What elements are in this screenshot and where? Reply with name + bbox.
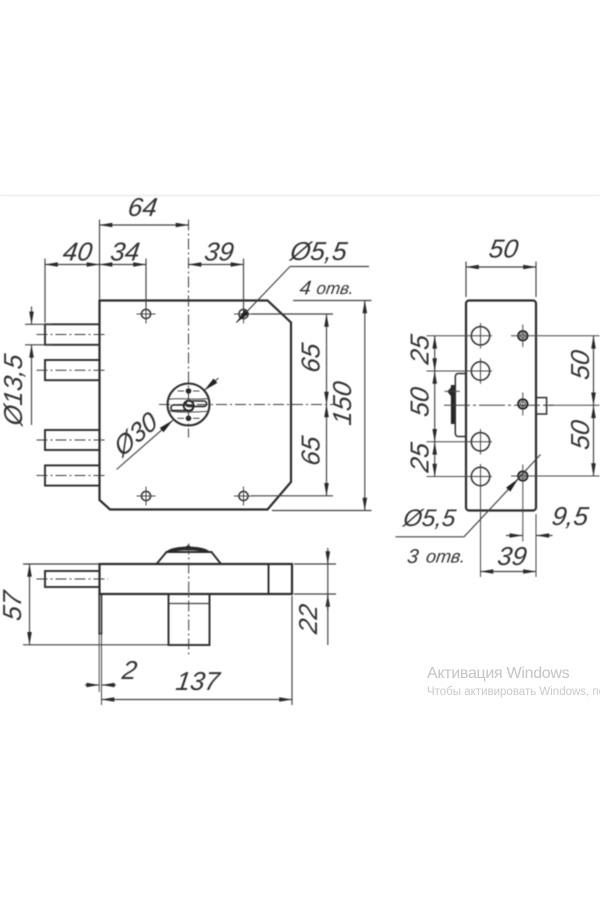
svg-text:3: 3	[406, 546, 420, 568]
svg-text:22: 22	[293, 602, 323, 637]
svg-text:50: 50	[565, 418, 595, 452]
svg-text:25: 25	[405, 332, 435, 367]
svg-text:57: 57	[0, 588, 27, 623]
svg-text:65: 65	[296, 434, 326, 468]
svg-text:9,5: 9,5	[550, 501, 591, 531]
svg-text:2: 2	[119, 655, 139, 685]
svg-text:Ø13,5: Ø13,5	[0, 352, 28, 428]
svg-text:39: 39	[203, 237, 236, 267]
svg-text:65: 65	[296, 341, 326, 375]
svg-text:39: 39	[496, 541, 529, 571]
svg-text:137: 137	[174, 666, 223, 696]
svg-text:40: 40	[61, 237, 95, 267]
svg-text:отв.: отв.	[425, 547, 467, 567]
svg-text:64: 64	[126, 192, 159, 222]
svg-text:50: 50	[405, 385, 435, 419]
svg-text:25: 25	[405, 440, 435, 475]
svg-text:50: 50	[565, 348, 595, 382]
svg-text:отв.: отв.	[315, 279, 355, 298]
svg-text:50: 50	[487, 234, 521, 264]
svg-text:Ø5,5: Ø5,5	[401, 505, 458, 532]
svg-text:Ø30: Ø30	[108, 405, 163, 463]
svg-text:4: 4	[298, 278, 312, 300]
svg-text:Ø5,5: Ø5,5	[287, 236, 349, 266]
svg-text:150: 150	[327, 379, 357, 427]
svg-text:34: 34	[109, 237, 142, 267]
